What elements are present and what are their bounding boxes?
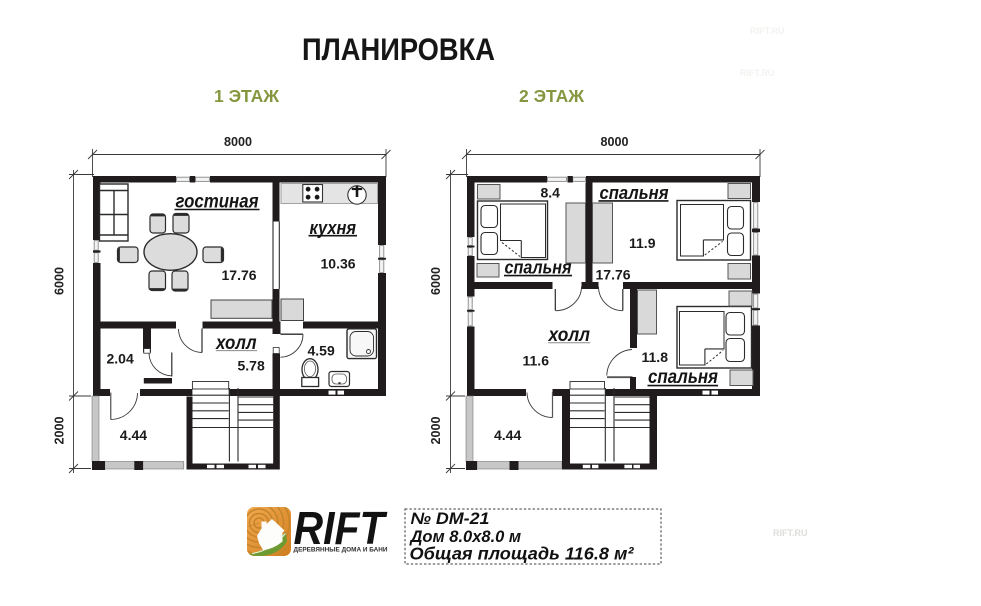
svg-text:11.9: 11.9 (629, 235, 656, 251)
svg-text:ДЕРЕВЯННЫЕ ДОМА И БАНИ: ДЕРЕВЯННЫЕ ДОМА И БАНИ (294, 547, 388, 554)
svg-text:спальня: спальня (505, 256, 572, 277)
svg-text:6000: 6000 (428, 267, 443, 295)
svg-text:2 ЭТАЖ: 2 ЭТАЖ (519, 86, 584, 106)
svg-text:6000: 6000 (52, 267, 67, 295)
svg-text:5.78: 5.78 (238, 358, 265, 374)
svg-text:11.6: 11.6 (523, 352, 550, 368)
svg-text:Общая площадь 116.8 м²: Общая площадь 116.8 м² (410, 544, 635, 564)
svg-text:10.36: 10.36 (321, 255, 356, 271)
svg-text:RIFT.RU: RIFT.RU (750, 26, 785, 36)
svg-text:17.76: 17.76 (596, 266, 631, 282)
svg-text:RIFT.RU: RIFT.RU (773, 528, 808, 538)
svg-text:2.04: 2.04 (107, 351, 134, 367)
svg-text:1 ЭТАЖ: 1 ЭТАЖ (214, 86, 279, 106)
svg-text:2000: 2000 (428, 417, 443, 445)
svg-text:8.4: 8.4 (541, 184, 561, 200)
svg-text:RIFT.RU: RIFT.RU (740, 68, 775, 78)
svg-text:8000: 8000 (601, 134, 629, 149)
svg-text:№ DM-21: № DM-21 (411, 510, 490, 528)
svg-text:спальня: спальня (600, 182, 669, 203)
svg-text:17.76: 17.76 (222, 267, 257, 283)
svg-text:4.44: 4.44 (120, 427, 147, 443)
svg-text:11.8: 11.8 (642, 349, 669, 365)
svg-text:2000: 2000 (52, 417, 67, 445)
svg-text:4.44: 4.44 (494, 427, 521, 443)
svg-text:8000: 8000 (224, 134, 252, 149)
svg-text:4.59: 4.59 (308, 342, 335, 358)
svg-text:ПЛАНИРОВКА: ПЛАНИРОВКА (302, 31, 495, 67)
